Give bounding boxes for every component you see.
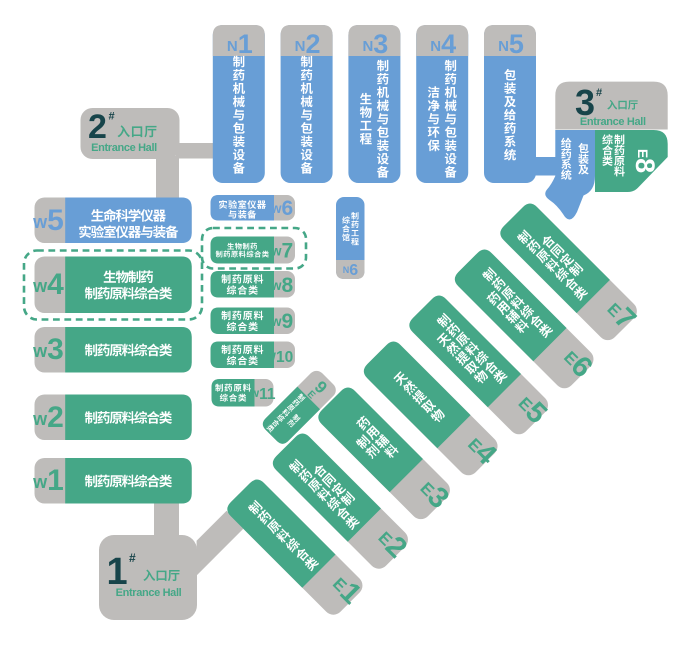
svg-text:#: #: [129, 551, 136, 565]
svg-text:2: 2: [88, 108, 107, 146]
svg-text:Entrance Hall: Entrance Hall: [580, 116, 646, 128]
svg-text:Entrance Hall: Entrance Hall: [91, 142, 157, 154]
svg-text:#: #: [596, 87, 602, 99]
svg-text:#: #: [109, 111, 115, 123]
svg-text:Entrance Hall: Entrance Hall: [116, 587, 182, 599]
